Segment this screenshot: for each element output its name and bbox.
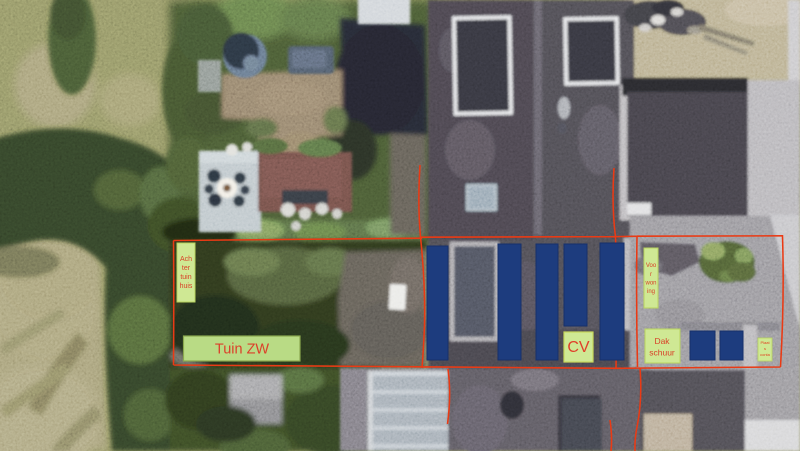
svg-text:tuin: tuin [180,274,191,281]
svg-text:Dak: Dak [654,336,670,346]
svg-text:Ach: Ach [180,256,192,263]
svg-text:won: won [644,281,656,287]
svg-text:r: r [650,272,652,278]
svg-text:schuur: schuur [649,348,675,358]
svg-text:conta: conta [760,352,771,357]
svg-text:huis: huis [180,283,193,290]
svg-text:Voo: Voo [646,263,657,269]
svg-text:ter: ter [182,265,191,272]
svg-text:ing: ing [647,289,655,295]
svg-text:s: s [764,346,766,351]
svg-text:CV: CV [567,339,590,356]
svg-text:Plaat: Plaat [760,340,770,345]
svg-text:Tuin ZW: Tuin ZW [215,342,270,358]
